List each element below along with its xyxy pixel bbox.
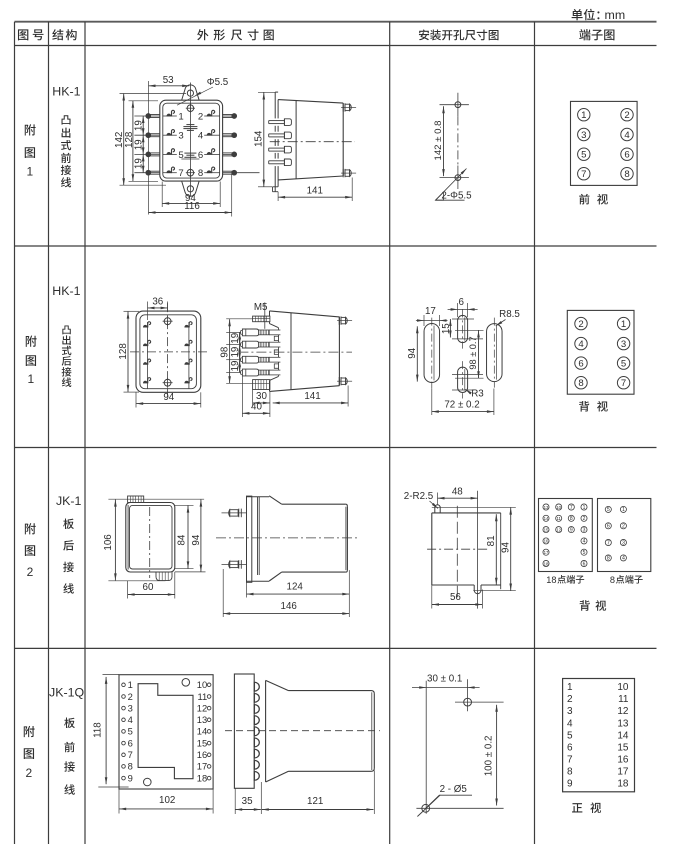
svg-text:30 ± 0.1: 30 ± 0.1 — [427, 673, 462, 684]
svg-text:30: 30 — [256, 391, 267, 402]
svg-text:15: 15 — [197, 737, 207, 748]
svg-text:1: 1 — [621, 319, 626, 330]
svg-text:72 ± 0.2: 72 ± 0.2 — [444, 399, 479, 410]
svg-text:1: 1 — [567, 682, 573, 693]
svg-text:14: 14 — [617, 730, 629, 741]
svg-text:R3: R3 — [471, 389, 484, 400]
svg-text:142 ± 0.8: 142 ± 0.8 — [433, 121, 444, 161]
svg-text:8: 8 — [570, 516, 573, 522]
svg-text:R8.5: R8.5 — [499, 309, 520, 320]
svg-text:2: 2 — [624, 110, 629, 121]
svg-text:2: 2 — [567, 694, 573, 705]
svg-text:1: 1 — [128, 679, 133, 690]
svg-text:11: 11 — [618, 694, 629, 705]
svg-text:6: 6 — [567, 742, 573, 753]
svg-text:2: 2 — [578, 319, 583, 330]
svg-text:JK-1Q: JK-1Q — [49, 686, 84, 700]
svg-text:84: 84 — [177, 534, 188, 545]
svg-text:7: 7 — [607, 540, 610, 546]
svg-text:3: 3 — [567, 706, 573, 717]
svg-text:8: 8 — [128, 761, 133, 772]
svg-text:7: 7 — [621, 378, 626, 389]
svg-text:98: 98 — [219, 346, 230, 357]
svg-text:3: 3 — [178, 131, 183, 142]
svg-text:15: 15 — [544, 527, 549, 532]
svg-text:124: 124 — [287, 581, 304, 592]
svg-text:7: 7 — [581, 169, 586, 180]
svg-text:2-R2.5: 2-R2.5 — [404, 491, 434, 502]
svg-text:2-Φ5.5: 2-Φ5.5 — [441, 190, 472, 201]
svg-text:5: 5 — [128, 726, 133, 737]
svg-text:18: 18 — [546, 575, 556, 585]
svg-text:2: 2 — [622, 524, 625, 530]
svg-text:100 ± 0.2: 100 ± 0.2 — [483, 736, 494, 777]
svg-text:mm: mm — [605, 8, 626, 22]
svg-text:4: 4 — [567, 718, 573, 729]
svg-text:118: 118 — [92, 722, 103, 738]
svg-text:4: 4 — [128, 714, 133, 725]
svg-text:9: 9 — [570, 527, 573, 533]
svg-text:2: 2 — [198, 111, 203, 122]
svg-text:4: 4 — [622, 556, 625, 562]
svg-text:7: 7 — [128, 749, 133, 760]
svg-text:94: 94 — [500, 542, 511, 553]
svg-text:12: 12 — [617, 706, 629, 717]
svg-text:6: 6 — [624, 150, 629, 161]
svg-text:9: 9 — [128, 772, 133, 783]
svg-text:6: 6 — [583, 561, 586, 567]
svg-text:17: 17 — [425, 306, 436, 317]
svg-text:12: 12 — [556, 527, 561, 532]
svg-text:106: 106 — [103, 534, 114, 551]
svg-text:8: 8 — [610, 575, 615, 585]
svg-text:16: 16 — [617, 755, 629, 766]
svg-text:3: 3 — [622, 540, 625, 546]
svg-text:10: 10 — [197, 679, 207, 690]
svg-text:98 ± 0.7: 98 ± 0.7 — [468, 336, 478, 369]
svg-text:94: 94 — [407, 347, 418, 358]
svg-text:Φ5.5: Φ5.5 — [207, 77, 229, 88]
svg-text:1: 1 — [583, 505, 586, 511]
svg-text:35: 35 — [242, 796, 253, 807]
svg-text:17: 17 — [617, 767, 629, 778]
svg-text:13: 13 — [197, 714, 207, 725]
svg-text:2: 2 — [128, 691, 133, 702]
svg-text:6: 6 — [578, 359, 583, 370]
svg-text:141: 141 — [304, 391, 320, 402]
svg-text:4: 4 — [583, 539, 586, 545]
svg-text:18: 18 — [197, 772, 207, 783]
svg-text:12: 12 — [197, 702, 207, 713]
svg-text:5: 5 — [607, 507, 610, 513]
svg-text:6: 6 — [607, 524, 610, 530]
svg-text:8: 8 — [607, 556, 610, 562]
svg-text:36: 36 — [152, 296, 163, 307]
svg-text:M5: M5 — [254, 302, 268, 313]
svg-text:18: 18 — [544, 561, 549, 566]
svg-text:7: 7 — [567, 755, 573, 766]
svg-text:14: 14 — [544, 516, 549, 521]
svg-text:HK-1: HK-1 — [52, 284, 80, 298]
svg-text:3: 3 — [583, 527, 586, 533]
svg-text:4: 4 — [198, 131, 204, 142]
svg-text:154: 154 — [253, 130, 264, 147]
svg-text:JK-1: JK-1 — [56, 494, 82, 508]
svg-text:13: 13 — [617, 718, 629, 729]
svg-text:7: 7 — [178, 168, 183, 179]
svg-text:5: 5 — [567, 730, 573, 741]
svg-text:116: 116 — [184, 201, 200, 212]
svg-text:146: 146 — [281, 601, 298, 612]
svg-text:11: 11 — [197, 691, 207, 702]
svg-text:128: 128 — [118, 343, 129, 360]
svg-text:11: 11 — [556, 516, 561, 521]
svg-text:6: 6 — [128, 737, 133, 748]
svg-text:5: 5 — [581, 150, 586, 161]
svg-text:8: 8 — [624, 169, 629, 180]
svg-text:5: 5 — [583, 550, 586, 556]
svg-text:94: 94 — [191, 534, 202, 545]
svg-text:2 - Ø5: 2 - Ø5 — [440, 784, 468, 795]
svg-text:4: 4 — [624, 130, 630, 141]
svg-text:1: 1 — [622, 507, 625, 513]
svg-text:48: 48 — [452, 486, 463, 497]
svg-text:2: 2 — [27, 565, 34, 579]
svg-text:94: 94 — [163, 392, 174, 403]
svg-text:HK-1: HK-1 — [52, 85, 80, 99]
svg-text:8: 8 — [198, 168, 203, 179]
svg-text:15: 15 — [617, 742, 629, 753]
svg-text:8: 8 — [578, 378, 583, 389]
svg-text:102: 102 — [159, 795, 175, 806]
svg-text:141: 141 — [307, 185, 323, 196]
svg-text:4: 4 — [578, 339, 584, 350]
svg-text:1: 1 — [28, 372, 35, 386]
svg-text:2: 2 — [583, 516, 586, 522]
svg-text:40: 40 — [251, 402, 262, 413]
svg-text:17: 17 — [544, 550, 549, 555]
svg-text:16: 16 — [197, 749, 207, 760]
svg-text:81: 81 — [486, 535, 497, 546]
svg-text:1: 1 — [178, 111, 183, 122]
svg-text:56: 56 — [450, 592, 461, 603]
svg-text:16: 16 — [544, 539, 549, 544]
svg-text:1: 1 — [581, 110, 586, 121]
svg-text:5: 5 — [621, 359, 626, 370]
svg-text:3: 3 — [581, 130, 586, 141]
svg-text:3: 3 — [621, 339, 626, 350]
svg-text:8: 8 — [567, 767, 573, 778]
svg-text:3: 3 — [128, 702, 133, 713]
svg-text:6: 6 — [458, 297, 464, 308]
svg-text:53: 53 — [163, 75, 174, 86]
svg-text:60: 60 — [143, 582, 154, 593]
svg-text:1: 1 — [27, 164, 34, 178]
svg-text:17: 17 — [197, 761, 207, 772]
svg-text:10: 10 — [617, 682, 629, 693]
svg-text:9: 9 — [567, 779, 573, 790]
svg-text:2: 2 — [26, 766, 33, 780]
svg-text:10: 10 — [556, 505, 561, 510]
svg-text:18: 18 — [617, 779, 629, 790]
svg-text:7: 7 — [570, 505, 573, 511]
svg-text:14: 14 — [197, 726, 207, 737]
svg-text:13: 13 — [544, 505, 549, 510]
svg-text:121: 121 — [307, 796, 323, 807]
